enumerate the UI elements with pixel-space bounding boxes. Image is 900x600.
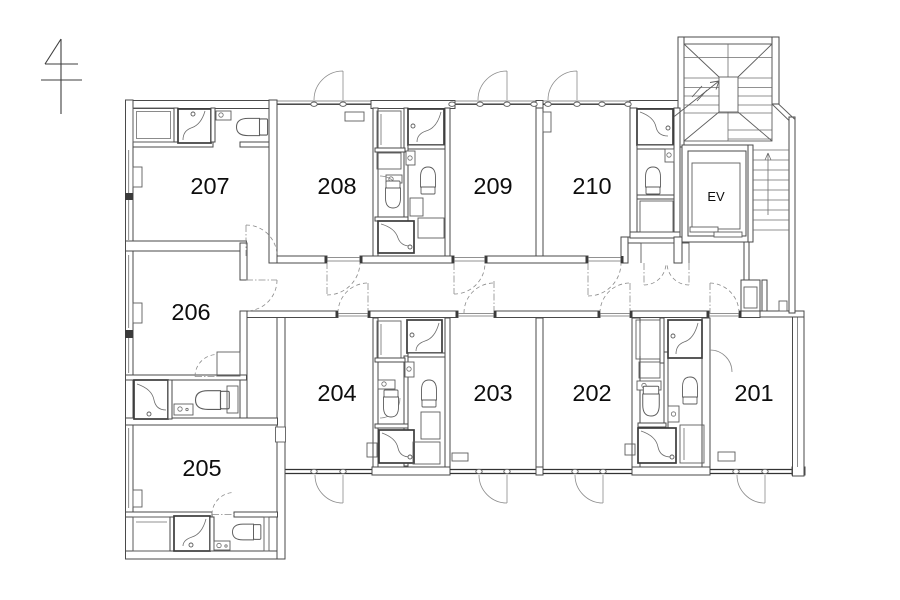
svg-text:201: 201: [734, 380, 773, 406]
svg-text:210: 210: [572, 173, 611, 199]
svg-text:204: 204: [317, 380, 356, 406]
svg-text:206: 206: [171, 299, 210, 325]
svg-text:205: 205: [182, 455, 221, 481]
svg-text:EV: EV: [707, 189, 725, 204]
svg-text:209: 209: [473, 173, 512, 199]
svg-text:208: 208: [317, 173, 356, 199]
svg-text:203: 203: [473, 380, 512, 406]
svg-text:202: 202: [572, 380, 611, 406]
svg-text:207: 207: [190, 173, 229, 199]
